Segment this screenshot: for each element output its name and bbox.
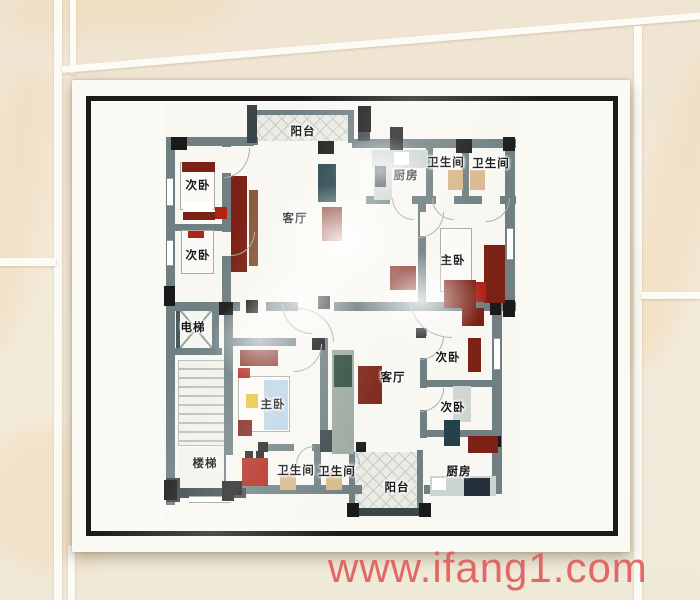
column-marker bbox=[356, 442, 366, 452]
furniture-item bbox=[249, 190, 258, 266]
room-label: 客厅 bbox=[283, 210, 308, 226]
window-strip bbox=[167, 178, 173, 206]
furniture-item bbox=[462, 308, 484, 326]
column-marker bbox=[318, 141, 334, 154]
furniture-item bbox=[484, 245, 505, 303]
column-marker bbox=[347, 503, 359, 517]
photo-of-floorplan-on-tiled-wall: 阳台次卧次卧客厅厨房卫生间卫生间主卧电梯楼梯主卧客厅次卧次卧卫生间卫生间阳台厨房… bbox=[0, 0, 700, 600]
furniture-item bbox=[188, 231, 204, 238]
furniture-item bbox=[444, 420, 460, 446]
door-gap bbox=[222, 232, 231, 256]
tile-grout-line bbox=[70, 0, 76, 74]
furniture-item bbox=[183, 212, 215, 220]
room-label: 次卧 bbox=[441, 399, 466, 415]
room-label: 卫生间 bbox=[472, 155, 510, 171]
room-label: 次卧 bbox=[186, 177, 211, 193]
tile-marbling bbox=[0, 67, 60, 352]
furniture-item bbox=[432, 478, 446, 490]
column-marker bbox=[230, 481, 242, 495]
room-label: 厨房 bbox=[394, 167, 419, 183]
column-marker bbox=[246, 300, 258, 313]
furniture-item bbox=[464, 478, 490, 496]
room-label: 次卧 bbox=[186, 247, 211, 263]
furniture-item bbox=[215, 207, 227, 219]
wall-segment-dark bbox=[349, 508, 427, 516]
furniture-item bbox=[246, 394, 258, 408]
window-strip bbox=[507, 228, 513, 260]
column-marker bbox=[358, 106, 371, 132]
furniture-item bbox=[375, 166, 386, 187]
room-label: 主卧 bbox=[441, 252, 466, 268]
room-label: 卫生间 bbox=[318, 463, 356, 479]
furniture-item bbox=[448, 170, 463, 190]
stairs bbox=[178, 360, 226, 446]
furniture-item bbox=[245, 451, 253, 458]
furniture-item bbox=[468, 338, 481, 372]
furniture-item bbox=[390, 266, 416, 290]
room-label: 厨房 bbox=[447, 463, 472, 479]
column-marker bbox=[318, 296, 330, 309]
furniture-item bbox=[256, 451, 264, 458]
tile-grout-line bbox=[634, 26, 642, 600]
wall-segment-dark bbox=[247, 105, 257, 143]
tile-grout-line bbox=[641, 292, 700, 299]
room-label: 电梯 bbox=[181, 319, 206, 335]
column-marker bbox=[164, 480, 177, 500]
column-marker bbox=[164, 286, 175, 306]
furniture-item bbox=[238, 420, 252, 436]
column-marker bbox=[219, 302, 233, 315]
wall-segment bbox=[166, 295, 175, 505]
wall-segment-dark bbox=[320, 430, 332, 452]
furniture-item bbox=[358, 366, 382, 404]
column-marker bbox=[456, 139, 472, 153]
furniture-item bbox=[240, 350, 278, 366]
window-strip bbox=[167, 240, 173, 266]
tile-grout-line bbox=[0, 258, 56, 266]
furniture-item bbox=[242, 458, 268, 486]
wall-segment bbox=[352, 139, 516, 148]
wall-segment bbox=[212, 302, 219, 355]
furniture-item bbox=[238, 368, 250, 378]
room-label: 阳台 bbox=[291, 123, 316, 139]
furniture-item bbox=[334, 355, 352, 387]
window-strip bbox=[494, 338, 500, 370]
watermark-url: www.ifang1.com bbox=[328, 544, 648, 592]
room-label: 阳台 bbox=[385, 479, 410, 495]
tile-grout-line bbox=[54, 0, 62, 600]
wall-segment bbox=[230, 485, 362, 494]
room-label: 楼梯 bbox=[193, 455, 218, 471]
furniture-item bbox=[394, 152, 409, 165]
furniture-item bbox=[470, 170, 485, 190]
furniture-item bbox=[468, 436, 498, 453]
furniture-item bbox=[182, 162, 215, 172]
room-label: 客厅 bbox=[381, 369, 406, 385]
wall-segment bbox=[250, 110, 352, 115]
furniture-item bbox=[318, 164, 336, 202]
column-marker bbox=[419, 503, 431, 517]
column-marker bbox=[171, 137, 187, 150]
room-label: 主卧 bbox=[261, 396, 286, 412]
tile-marbling bbox=[9, 0, 231, 40]
tile-grout-line bbox=[68, 545, 75, 600]
room-label: 卫生间 bbox=[277, 462, 315, 478]
column-marker bbox=[503, 137, 515, 151]
floor-plan: 阳台次卧次卧客厅厨房卫生间卫生间主卧电梯楼梯主卧客厅次卧次卧卫生间卫生间阳台厨房 bbox=[72, 80, 630, 552]
furniture-item bbox=[322, 207, 342, 241]
furniture-item bbox=[231, 176, 247, 272]
room-label: 卫生间 bbox=[427, 154, 465, 170]
door-gap bbox=[226, 455, 233, 481]
floorplan-paper: 阳台次卧次卧客厅厨房卫生间卫生间主卧电梯楼梯主卧客厅次卧次卧卫生间卫生间阳台厨房 bbox=[72, 80, 630, 552]
wall-segment bbox=[492, 306, 502, 494]
room-label: 次卧 bbox=[436, 349, 461, 365]
